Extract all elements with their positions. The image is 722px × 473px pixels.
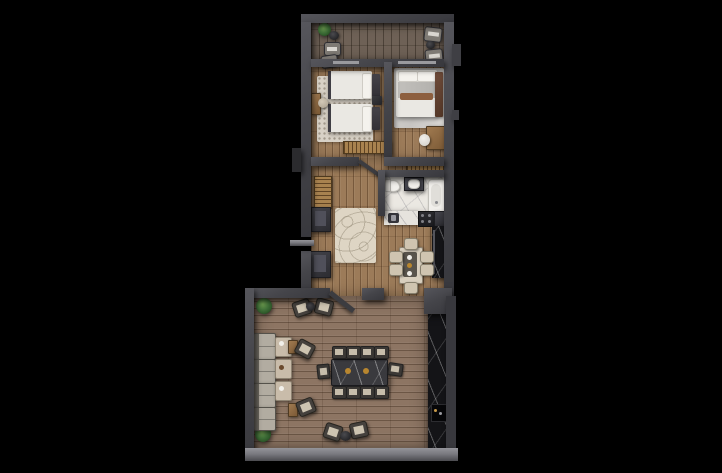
lounge-seat-3 [253, 383, 276, 408]
balcony-slider-door-1 [333, 61, 359, 64]
conf-chair-bottom-1 [332, 386, 347, 399]
entrance-door [290, 240, 314, 246]
twin-nightstand [372, 96, 382, 105]
burner-1 [421, 214, 424, 217]
lounge-seat-4 [253, 407, 276, 431]
wall-bathroom-top [378, 170, 444, 177]
lounge-table-1-item [279, 341, 284, 346]
bathtub-drain [435, 201, 438, 204]
floor-plan-stage [0, 0, 722, 473]
double-bed-pillow-2 [417, 71, 437, 82]
conf-chair-bottom-4 [374, 386, 389, 399]
hallway-cabinet-2-shelf [314, 255, 326, 272]
balcony-side-table-right [426, 41, 435, 49]
wall-living-bottom [245, 448, 458, 461]
conf-chair-top-4 [374, 346, 389, 359]
wall-living-top-left [245, 288, 330, 298]
living-plant-top-left [256, 298, 272, 314]
twin-desk-chair [318, 98, 328, 108]
dining-bowl-brass [407, 263, 412, 268]
radiator [314, 176, 332, 209]
burner-3 [421, 220, 424, 223]
conf-chair-top-2 [346, 346, 361, 359]
conf-chair-bottom-3 [360, 386, 375, 399]
double-bed-headboard [435, 72, 443, 117]
burner-2 [428, 214, 431, 217]
double-bed-pillow-1 [398, 71, 418, 82]
lounge-table-3-item [279, 386, 284, 391]
conference-table-brass-bowl-1 [345, 368, 351, 374]
dining-chair-top [404, 238, 418, 250]
balcony-side-table-left [329, 31, 339, 40]
conf-chair-right-end [387, 362, 404, 377]
toilet-tank [385, 179, 391, 192]
single-bed-1-headboard [372, 74, 380, 97]
wall-living-left [245, 288, 254, 461]
wall-right-protrusion-1 [452, 44, 461, 66]
double-bed-accent-pillow [400, 93, 433, 100]
hallway-cabinet-1-shelf [315, 211, 326, 226]
conf-chair-top-1 [332, 346, 347, 359]
wall-right-protrusion-2 [452, 110, 459, 120]
lounge-seat-2 [253, 359, 276, 384]
wall-bedrooms-bottom-right [384, 157, 444, 166]
single-bed-2-pillow [362, 106, 372, 132]
dining-chair-bottom [404, 282, 418, 294]
media-marble-wall [428, 314, 447, 448]
lounge-table-2-item [279, 365, 284, 370]
dining-chair-left-2 [389, 264, 403, 276]
lounge-seat-1 [253, 333, 276, 360]
conf-chair-top-3 [360, 346, 375, 359]
wall-left-upper [301, 22, 311, 237]
wall-bathroom-left [378, 170, 385, 216]
dining-plate-1 [407, 255, 412, 260]
wall-top-exterior [301, 14, 454, 23]
hallway-rug [335, 208, 376, 263]
wall-living-top-mid [362, 288, 384, 300]
single-bed-2-frame [328, 104, 331, 132]
dining-chair-right-1 [420, 251, 434, 263]
conference-table-brass-bowl-2 [363, 368, 369, 374]
single-bed-2-headboard [372, 107, 380, 130]
kitchen-sink-basin [391, 215, 396, 221]
balcony-slider-door-2 [398, 61, 436, 64]
fireplace-glow-1 [434, 409, 437, 412]
bathroom-sink [408, 179, 420, 189]
double-desk-chair [419, 134, 430, 146]
conf-chair-left-end [316, 363, 330, 379]
single-bed-1-frame [328, 71, 331, 99]
conf-chair-bottom-2 [346, 386, 361, 399]
fireplace-glow-2 [439, 412, 442, 415]
single-bed-1-pillow [362, 73, 372, 99]
dining-plate-2 [407, 271, 412, 276]
wall-bedroom-divider [384, 62, 392, 158]
dining-chair-right-2 [420, 264, 434, 276]
conference-table [331, 359, 388, 386]
burner-4 [428, 220, 431, 223]
wall-bedrooms-bottom-left [311, 157, 359, 166]
scatter-table-top [306, 302, 315, 311]
lounge-table-3 [275, 381, 292, 401]
scatter-table-bottom [340, 431, 351, 441]
wall-living-right [446, 296, 456, 461]
balcony-chair-right-1 [423, 26, 443, 43]
dining-chair-left-1 [389, 251, 403, 263]
wall-left-protrusion [292, 148, 301, 172]
